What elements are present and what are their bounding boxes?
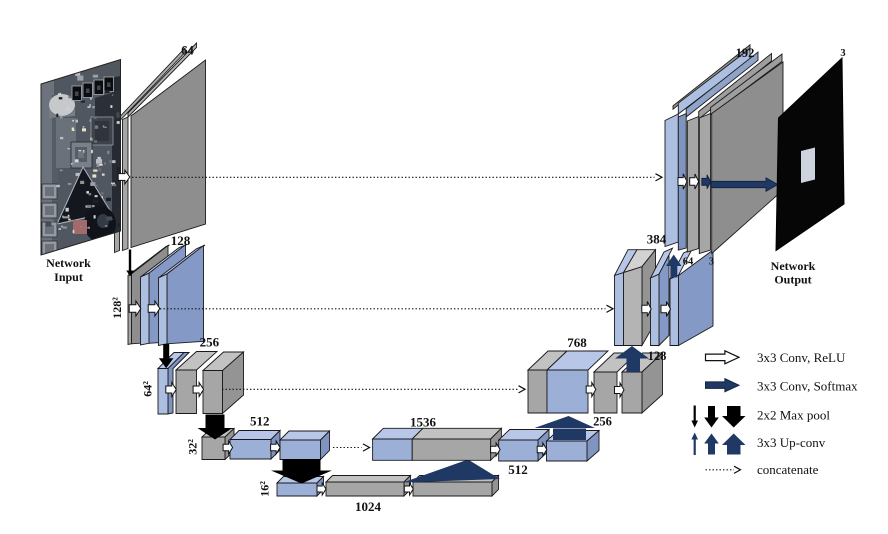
svg-text:3: 3: [709, 257, 714, 268]
svg-text:64²: 64²: [141, 381, 155, 397]
svg-text:1536: 1536: [410, 415, 437, 430]
svg-text:768: 768: [567, 335, 587, 350]
svg-text:512: 512: [250, 414, 270, 429]
svg-text:concatenate: concatenate: [757, 462, 819, 477]
svg-text:64: 64: [181, 44, 194, 58]
svg-text:16²: 16²: [258, 481, 272, 497]
svg-text:Output: Output: [774, 273, 811, 287]
svg-text:3x3 Conv, Softmax: 3x3 Conv, Softmax: [757, 379, 858, 394]
svg-text:32²: 32²: [186, 439, 200, 455]
svg-text:2x2 Max pool: 2x2 Max pool: [757, 408, 830, 423]
svg-text:64: 64: [683, 257, 694, 268]
svg-text:256: 256: [200, 335, 220, 350]
svg-text:128: 128: [648, 349, 667, 363]
svg-text:Network: Network: [46, 256, 91, 270]
svg-text:512: 512: [508, 462, 528, 477]
svg-text:3x3 Conv, ReLU: 3x3 Conv, ReLU: [757, 350, 846, 365]
svg-text:192: 192: [736, 46, 755, 60]
svg-text:384: 384: [647, 232, 667, 247]
svg-text:Network: Network: [771, 259, 816, 273]
svg-text:1024: 1024: [355, 499, 382, 514]
svg-text:3x3 Up-conv: 3x3 Up-conv: [757, 435, 826, 450]
svg-text:Input: Input: [54, 270, 83, 284]
svg-text:128²: 128²: [110, 297, 124, 319]
svg-text:128: 128: [171, 233, 191, 248]
svg-text:256: 256: [593, 415, 612, 429]
svg-text:3: 3: [840, 48, 845, 59]
